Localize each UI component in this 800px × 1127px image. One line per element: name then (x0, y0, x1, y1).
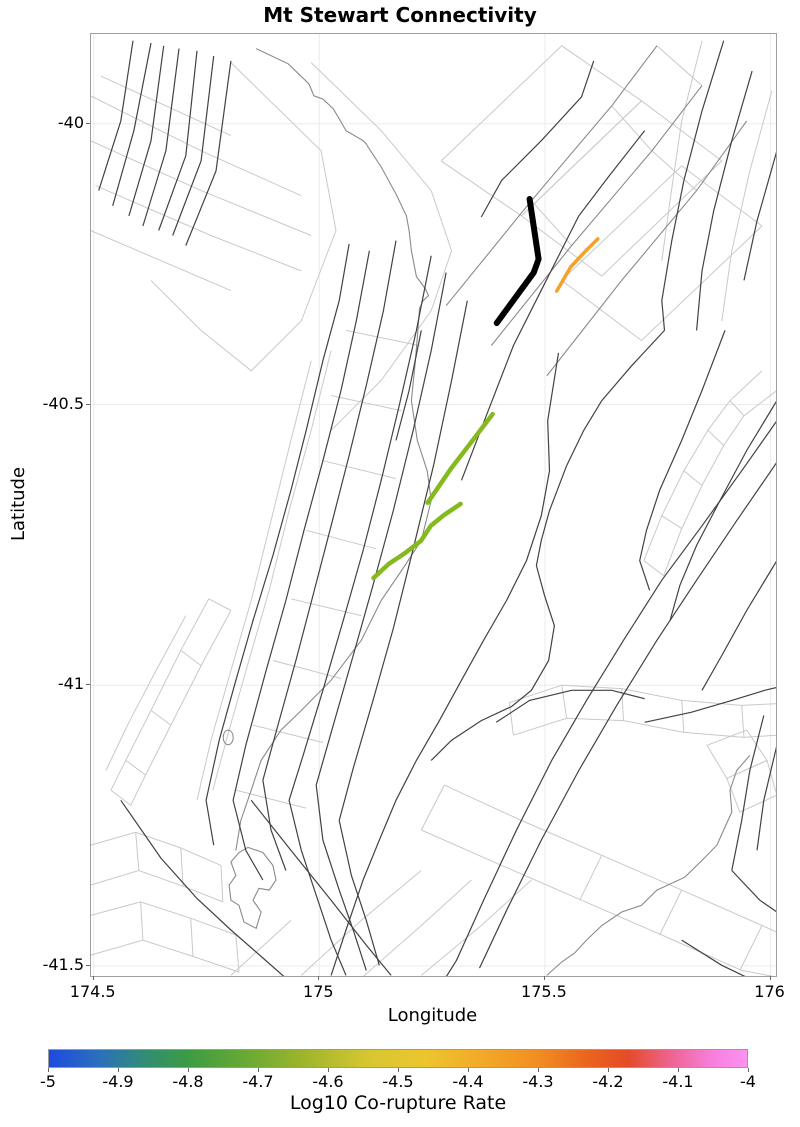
y-tick-label: -41 (28, 675, 84, 693)
colorbar (48, 1049, 748, 1068)
fault-trace (213, 351, 331, 791)
x-tick-mark (544, 976, 545, 980)
chart-title: Mt Stewart Connectivity (0, 3, 800, 27)
fault-trace (660, 890, 682, 935)
fault-trace (209, 599, 231, 611)
colorbar-tick-label: -4.9 (90, 1073, 146, 1091)
fault-trace (480, 462, 777, 968)
x-tick-label: 176 (740, 983, 800, 1001)
co-rupture-segment-green-upper (428, 414, 493, 503)
fault-trace (421, 830, 776, 976)
fault-trace (708, 430, 724, 445)
fault-trace (331, 353, 558, 976)
colorbar-tick-label: -4.6 (300, 1073, 356, 1091)
colorbar-tick-label: -4.2 (580, 1073, 636, 1091)
x-tick-mark (93, 976, 94, 980)
fault-trace (121, 800, 286, 976)
fault-trace (730, 401, 744, 416)
map-canvas (91, 34, 776, 976)
fault-trace (99, 41, 133, 191)
fault-trace (684, 471, 702, 486)
x-tick-label: 175 (288, 983, 348, 1001)
fault-trace (522, 101, 722, 276)
fault-trace (662, 41, 702, 261)
y-tick-label: -41.5 (28, 956, 84, 974)
fault-trace (722, 91, 772, 321)
fault-trace (91, 940, 239, 972)
fault-trace (697, 71, 753, 330)
fault-trace (136, 832, 139, 870)
fault-trace (441, 46, 641, 216)
fault-trace (151, 711, 171, 726)
fault-trace (662, 516, 682, 529)
fault-trace (740, 926, 762, 971)
y-axis-label: Latitude (8, 404, 32, 604)
fault-trace (562, 685, 567, 718)
fault-trace (106, 616, 186, 771)
fault-trace (111, 790, 131, 805)
colorbar-tick-label: -4.7 (230, 1073, 286, 1091)
fault-trace (662, 41, 724, 331)
x-tick-label: 174.5 (63, 983, 123, 1001)
fault-trace (91, 231, 231, 291)
fault-trace (253, 725, 323, 742)
fault-trace (101, 76, 231, 136)
fault-trace (291, 599, 361, 616)
co-rupture-segment-green-lower (374, 504, 461, 578)
fault-trace (644, 401, 730, 561)
fault-trace (612, 106, 652, 151)
fault-trace (91, 871, 223, 902)
colorbar-tick-label: -4.4 (440, 1073, 496, 1091)
y-tick-mark (86, 684, 90, 685)
fault-trace (339, 301, 467, 966)
fault-trace (730, 371, 762, 401)
x-tick-label: 175.5 (514, 983, 574, 1001)
fault-trace (91, 832, 221, 865)
fault-trace (113, 43, 151, 206)
fault-trace (206, 244, 349, 845)
fault-trace (640, 330, 725, 590)
colorbar-tick-label: -4.3 (510, 1073, 566, 1091)
colorbar-tick-label: -5 (20, 1073, 76, 1091)
fault-trace (151, 63, 336, 371)
fault-trace (311, 63, 451, 431)
fault-trace (126, 760, 146, 775)
fault-trace (580, 855, 602, 900)
fault-trace (732, 716, 764, 871)
fault-trace (91, 902, 236, 935)
figure: Mt Stewart Connectivity Longitude Latitu… (0, 0, 800, 1127)
fault-trace (444, 785, 776, 932)
fault-trace (229, 847, 276, 928)
fault-trace (159, 51, 197, 231)
fault-trace (444, 421, 776, 976)
fault-trace (732, 871, 776, 913)
colorbar-tick-label: -4 (720, 1073, 776, 1091)
colorbar-tick-label: -4.5 (370, 1073, 426, 1091)
fault-trace (316, 273, 446, 971)
fault-trace (96, 186, 302, 271)
fault-trace (446, 46, 657, 306)
fault-trace (331, 396, 401, 411)
colorbar-tick-label: -4.8 (160, 1073, 216, 1091)
fault-trace (644, 561, 664, 576)
y-tick-mark (86, 123, 90, 124)
fault-trace (547, 121, 747, 376)
fault-trace (231, 920, 291, 975)
fault-trace (547, 755, 750, 975)
fault-trace (462, 131, 645, 481)
fault-trace (91, 141, 311, 236)
fault-trace (682, 700, 684, 732)
colorbar-label: Log10 Co-rupture Rate (48, 1092, 748, 1114)
fault-trace (744, 391, 776, 416)
fault-trace (111, 599, 209, 790)
fault-trace (513, 718, 776, 737)
fault-trace (141, 902, 143, 940)
x-axis-label: Longitude (90, 1005, 775, 1026)
fault-trace (727, 760, 776, 812)
fault-trace (131, 611, 231, 806)
x-tick-mark (770, 976, 771, 980)
fault-trace (197, 361, 311, 801)
y-tick-label: -40.5 (28, 395, 84, 413)
fault-trace (346, 330, 420, 345)
colorbar-tick-label: -4.1 (650, 1073, 706, 1091)
fault-trace (236, 49, 431, 851)
fault-trace (421, 785, 444, 830)
fault-trace (396, 330, 421, 440)
fault-trace (664, 416, 744, 576)
fault-trace (191, 918, 193, 956)
x-tick-mark (318, 976, 319, 980)
y-tick-label: -40 (28, 114, 84, 132)
fault-trace (221, 865, 223, 902)
plot-area (90, 33, 777, 977)
fault-trace (742, 705, 744, 737)
y-tick-mark (86, 404, 90, 405)
fault-trace (236, 935, 239, 972)
fault-trace (702, 561, 776, 691)
fault-trace (562, 166, 762, 341)
fault-trace (181, 650, 201, 665)
y-tick-mark (86, 965, 90, 966)
